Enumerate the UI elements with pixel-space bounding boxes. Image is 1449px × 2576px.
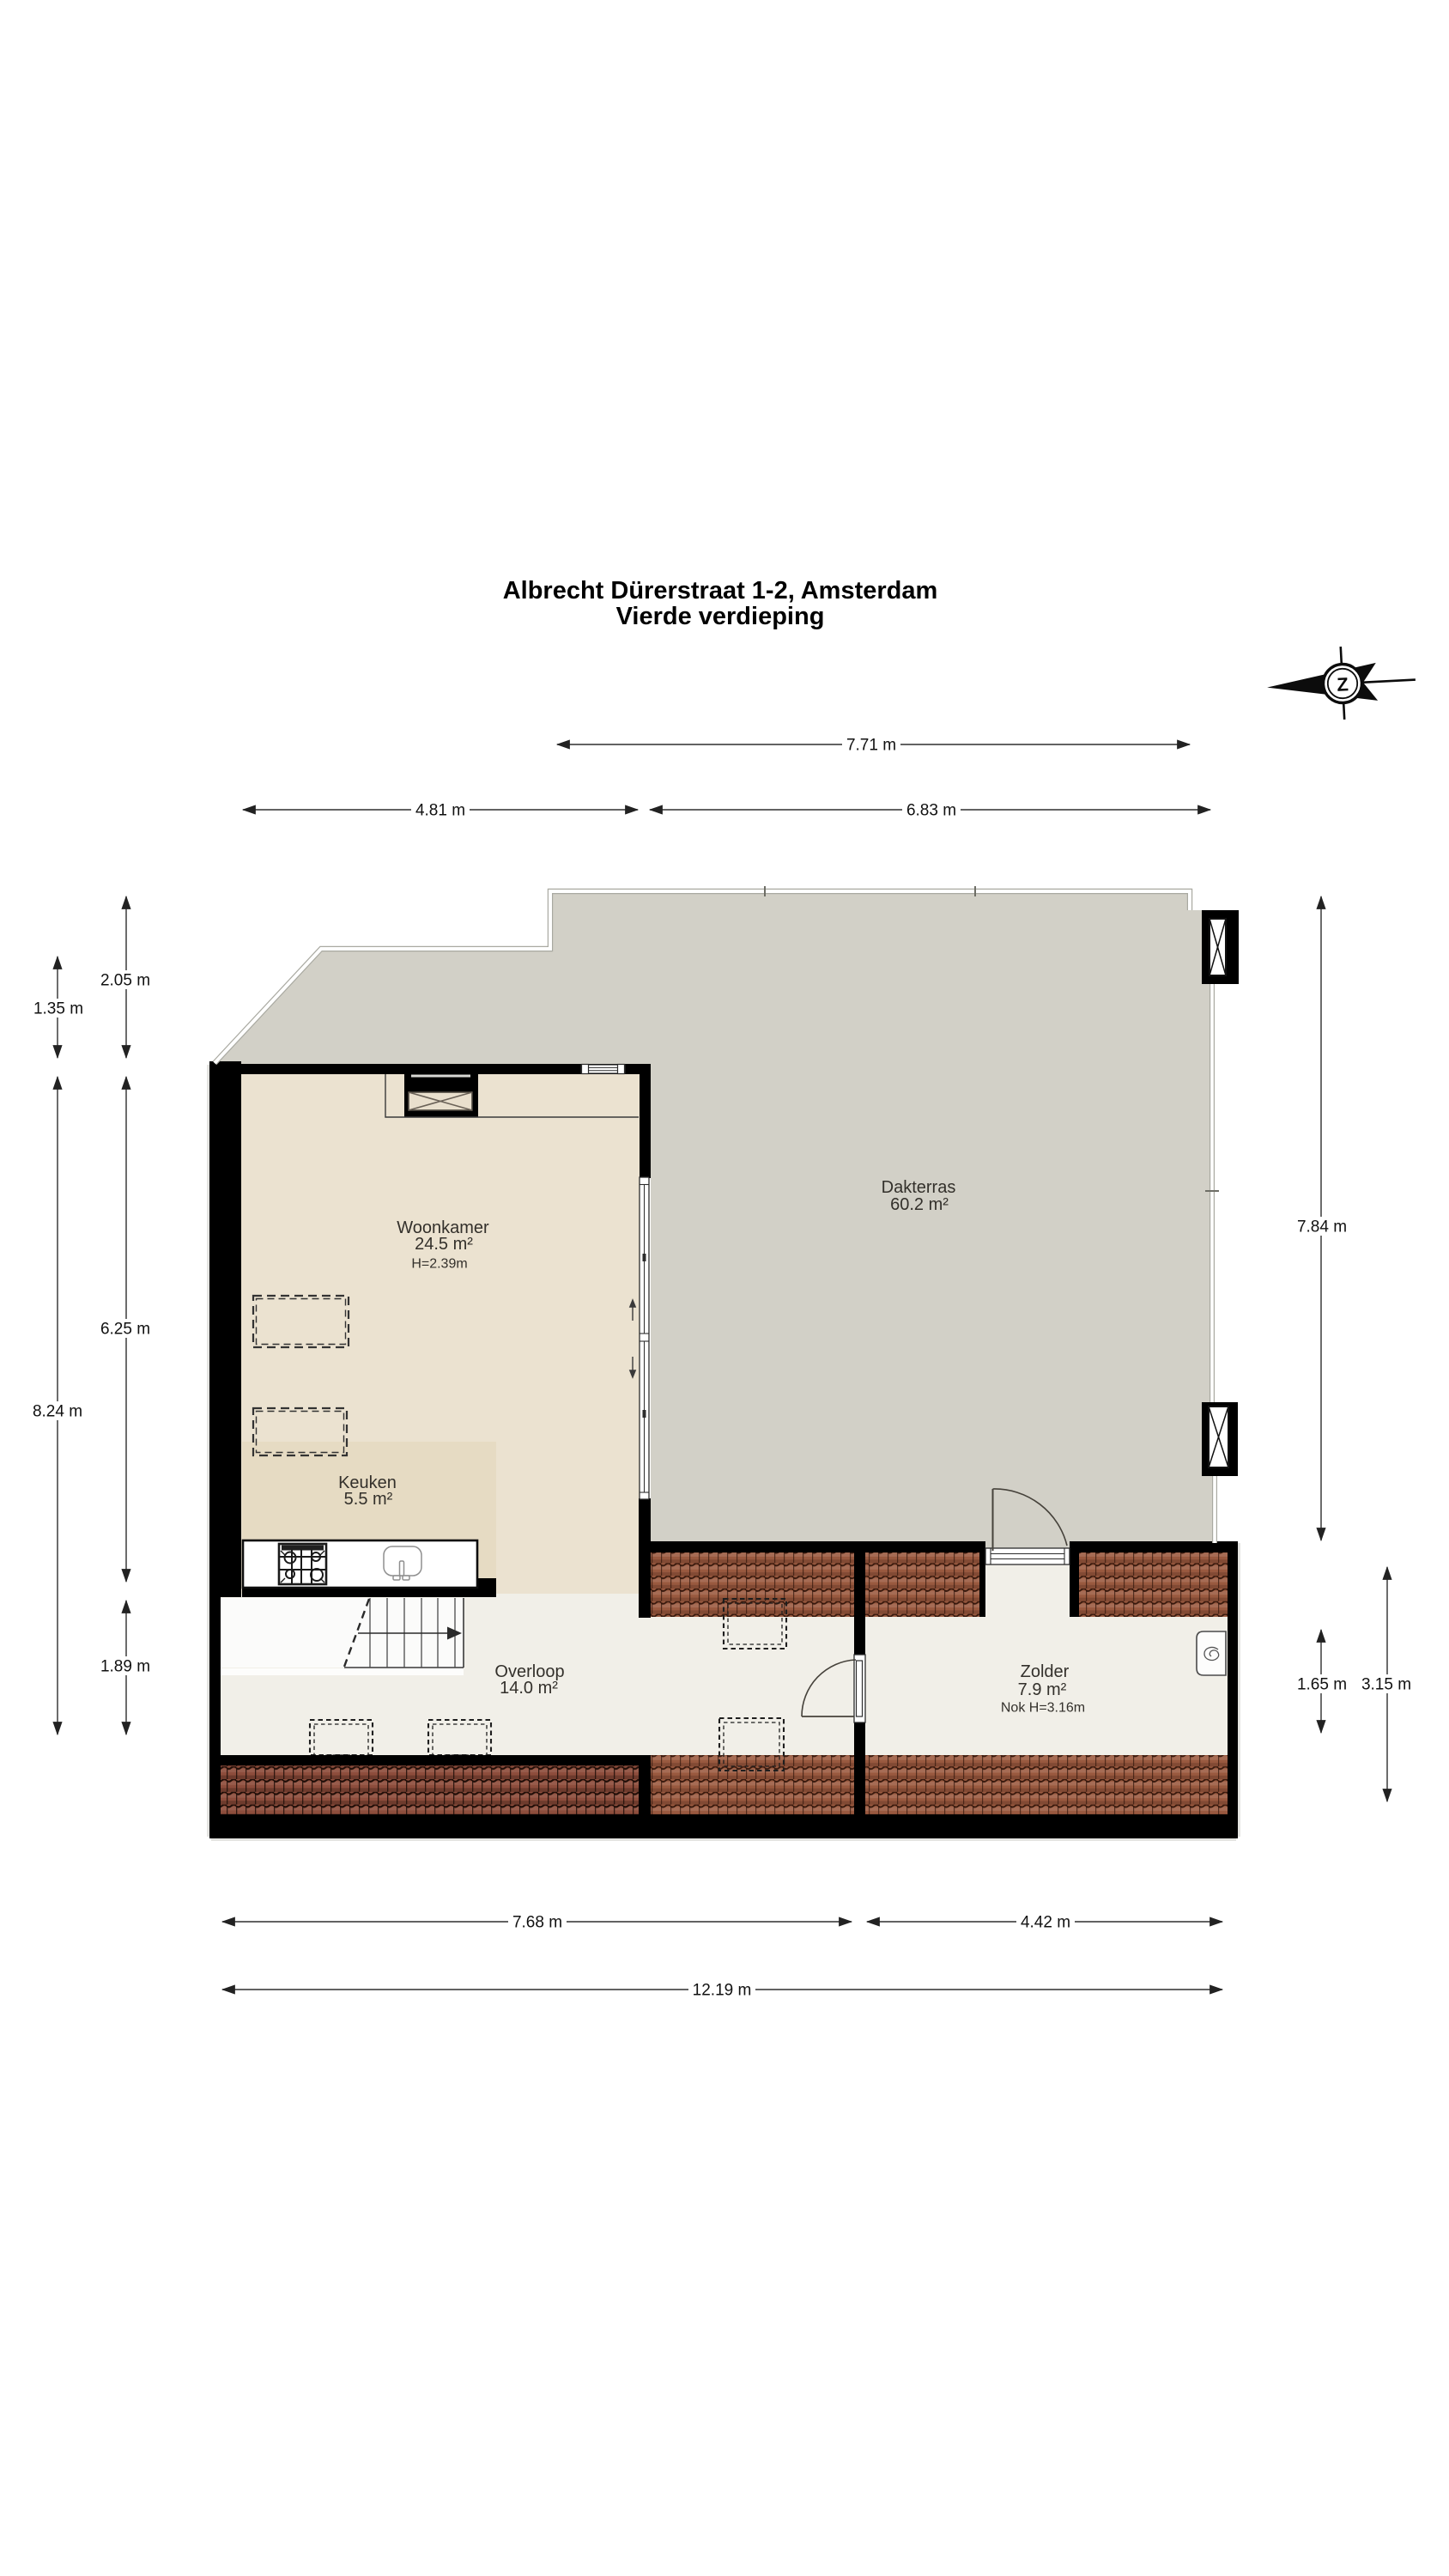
- svg-text:Albrecht Dürerstraat 1-2, Amst: Albrecht Dürerstraat 1-2, Amsterdam: [503, 577, 938, 605]
- svg-text:1.65 m: 1.65 m: [1297, 1676, 1347, 1694]
- svg-text:Z: Z: [1337, 673, 1349, 696]
- svg-text:4.81 m: 4.81 m: [415, 802, 465, 820]
- svg-text:8.24 m: 8.24 m: [33, 1403, 82, 1421]
- svg-text:6.83 m: 6.83 m: [906, 802, 956, 820]
- svg-text:7.9 m²: 7.9 m²: [1018, 1680, 1067, 1699]
- svg-text:24.5 m²: 24.5 m²: [415, 1235, 473, 1254]
- svg-text:Nok H=3.16m: Nok H=3.16m: [1001, 1701, 1085, 1716]
- svg-text:7.71 m: 7.71 m: [846, 737, 896, 755]
- svg-text:3.15 m: 3.15 m: [1361, 1676, 1411, 1694]
- svg-text:Vierde verdieping: Vierde verdieping: [616, 603, 825, 630]
- svg-text:Zolder: Zolder: [1021, 1662, 1070, 1681]
- svg-text:7.84 m: 7.84 m: [1297, 1218, 1347, 1236]
- svg-text:2.05 m: 2.05 m: [100, 972, 150, 990]
- svg-text:7.68 m: 7.68 m: [512, 1914, 562, 1932]
- svg-text:5.5 m²: 5.5 m²: [344, 1490, 393, 1509]
- svg-text:1.35 m: 1.35 m: [33, 1000, 83, 1018]
- svg-text:12.19 m: 12.19 m: [693, 1982, 752, 2000]
- svg-text:1.89 m: 1.89 m: [100, 1658, 150, 1676]
- svg-text:H=2.39m: H=2.39m: [411, 1257, 467, 1272]
- svg-text:6.25 m: 6.25 m: [100, 1321, 150, 1339]
- svg-text:14.0 m²: 14.0 m²: [500, 1679, 558, 1698]
- svg-text:Dakterras: Dakterras: [882, 1178, 956, 1197]
- svg-text:60.2 m²: 60.2 m²: [890, 1195, 949, 1214]
- svg-text:4.42 m: 4.42 m: [1021, 1914, 1070, 1932]
